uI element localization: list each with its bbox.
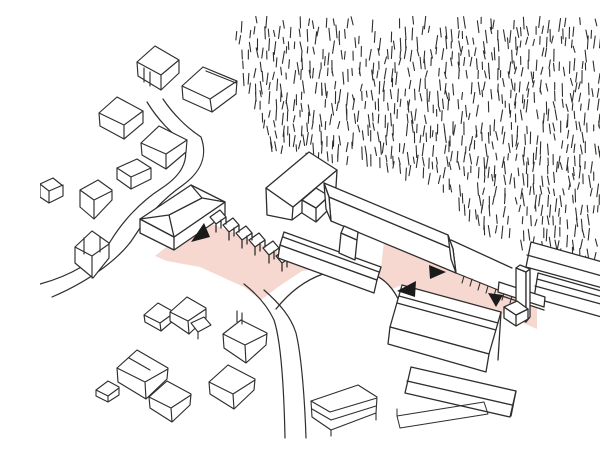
house-sw-6 [209,365,255,409]
bar-west-2 [80,180,112,219]
lawn-mound-fill [276,270,405,363]
scene-layer [40,46,600,438]
cross-gable-house [75,231,109,278]
house-nw-2 [182,67,237,112]
house-nw-1 [137,46,179,90]
house-nw-4 [141,126,187,169]
sketch-svg [40,16,600,440]
site-plan-sketch [40,16,600,440]
hut-sw [96,381,119,402]
bar-west-1 [117,159,151,189]
low-pavilion [311,385,377,436]
south-building-wing [405,367,516,417]
path-upper-edge [451,240,512,268]
house-nw-3 [99,97,143,139]
edge-bar-west [40,178,63,203]
house-sw-3 [223,311,267,363]
